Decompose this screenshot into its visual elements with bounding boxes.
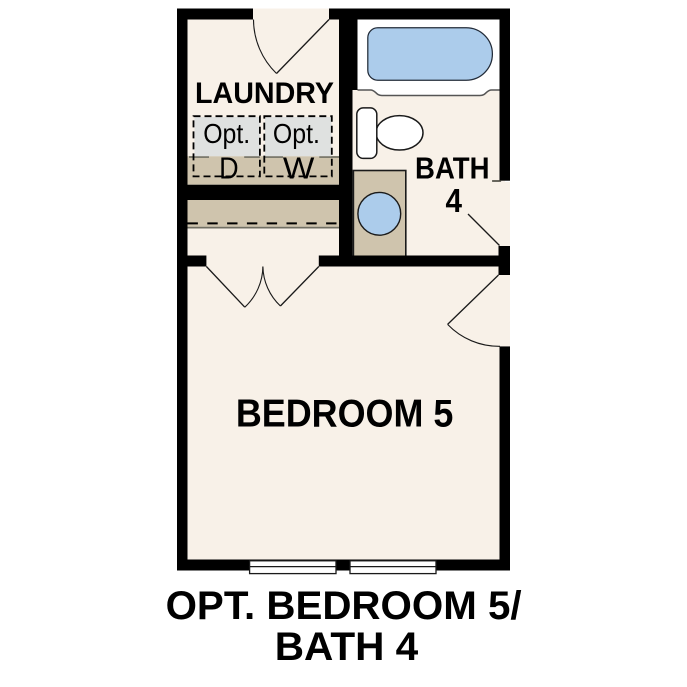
svg-text:BATH 4: BATH 4 [275, 625, 419, 669]
svg-text:LAUNDRY: LAUNDRY [195, 77, 334, 110]
svg-text:Opt.: Opt. [273, 118, 320, 149]
svg-text:OPT. BEDROOM 5/: OPT. BEDROOM 5/ [166, 584, 522, 628]
svg-text:W: W [283, 152, 315, 186]
svg-text:4: 4 [445, 183, 462, 220]
svg-text:Opt.: Opt. [203, 118, 250, 149]
svg-text:D: D [219, 152, 239, 186]
svg-text:BATH: BATH [415, 152, 490, 186]
svg-text:BEDROOM 5: BEDROOM 5 [236, 392, 454, 435]
